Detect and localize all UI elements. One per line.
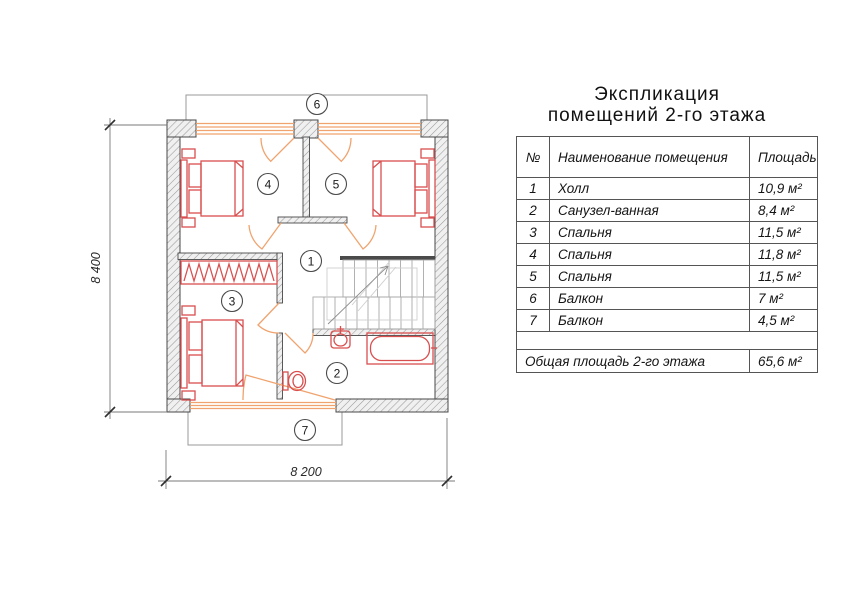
door-hall-to-bathroom: [285, 333, 313, 353]
total-area: 65,6 м²: [750, 350, 818, 373]
room-label-6: 6: [307, 94, 328, 115]
room-label-5: 5: [326, 174, 347, 195]
room-label-3: 3: [222, 291, 243, 312]
bed-room4: [181, 149, 243, 227]
room-number-3: 3: [229, 295, 236, 309]
row-area: 8,4 м²: [750, 200, 818, 222]
room-number-7: 7: [302, 424, 309, 438]
dimension-vertical: 8 400: [89, 118, 167, 419]
table-title-line2: помещений 2-го этажа: [516, 105, 798, 126]
room-label-1: 1: [301, 251, 322, 272]
dim-text-8400: 8 400: [89, 252, 103, 283]
room-number-4: 4: [265, 178, 272, 192]
row-area: 10,9 м²: [750, 178, 818, 200]
room-label-4: 4: [258, 174, 279, 195]
table-row: 4 Спальня 11,8 м²: [517, 244, 818, 266]
room-number-5: 5: [333, 178, 340, 192]
table-header-row: № Наименование помещения Площадь: [517, 137, 818, 178]
staircase: [313, 260, 435, 329]
window-band-top-right: [318, 124, 421, 135]
row-name: Санузел-ванная: [550, 200, 750, 222]
balcony-door-swing-room5: [318, 138, 351, 161]
wardrobe-room3: [181, 261, 277, 284]
header-num: №: [517, 137, 550, 178]
door-room4-to-hall: [249, 223, 281, 249]
row-name: Спальня: [550, 266, 750, 288]
row-area: 11,5 м²: [750, 222, 818, 244]
room-label-7: 7: [295, 420, 316, 441]
room-number-6: 6: [314, 98, 321, 112]
toilet-icon: [283, 372, 306, 391]
row-name: Холл: [550, 178, 750, 200]
row-num: 7: [517, 310, 550, 332]
door-room5-to-hall: [344, 223, 376, 249]
row-num: 4: [517, 244, 550, 266]
balcony-door-swing-room4: [261, 138, 294, 161]
row-area: 4,5 м²: [750, 310, 818, 332]
row-num: 2: [517, 200, 550, 222]
header-name: Наименование помещения: [550, 137, 750, 178]
window-band-top-left: [196, 124, 294, 135]
room-number-1: 1: [308, 255, 315, 269]
explication-table: № Наименование помещения Площадь 1 Холл …: [516, 136, 818, 373]
table-row: 3 Спальня 11,5 м²: [517, 222, 818, 244]
total-label: Общая площадь 2-го этажа: [517, 350, 750, 373]
table-row: 5 Спальня 11,5 м²: [517, 266, 818, 288]
door-hall-to-room3: [258, 303, 279, 333]
row-name: Балкон: [550, 310, 750, 332]
row-num: 5: [517, 266, 550, 288]
row-name: Балкон: [550, 288, 750, 310]
balcony-door-band-bottom: [190, 375, 336, 409]
header-area: Площадь: [750, 137, 818, 178]
table-row: 1 Холл 10,9 м²: [517, 178, 818, 200]
row-num: 3: [517, 222, 550, 244]
dim-text-8200: 8 200: [290, 465, 321, 479]
spacer-cell: [517, 332, 818, 350]
row-area: 11,5 м²: [750, 266, 818, 288]
bed-room3: [181, 306, 243, 400]
drawing-sheet: 1 2 3 4 5 6 7 8 400: [0, 0, 862, 610]
row-area: 7 м²: [750, 288, 818, 310]
row-name: Спальня: [550, 222, 750, 244]
table-row: 7 Балкон 4,5 м²: [517, 310, 818, 332]
table-title: Экспликация помещений 2-го этажа: [516, 84, 798, 126]
balcony-7-outline: [188, 412, 342, 445]
room-label-2: 2: [327, 363, 348, 384]
bed-room5: [373, 149, 435, 227]
room-number-2: 2: [334, 367, 341, 381]
row-num: 1: [517, 178, 550, 200]
table-row: 2 Санузел-ванная 8,4 м²: [517, 200, 818, 222]
table-row: 6 Балкон 7 м²: [517, 288, 818, 310]
row-area: 11,8 м²: [750, 244, 818, 266]
row-num: 6: [517, 288, 550, 310]
table-total-row: Общая площадь 2-го этажа 65,6 м²: [517, 350, 818, 373]
table-title-line1: Экспликация: [516, 84, 798, 105]
table-spacer-row: [517, 332, 818, 350]
row-name: Спальня: [550, 244, 750, 266]
bathtub-icon: [367, 333, 437, 364]
